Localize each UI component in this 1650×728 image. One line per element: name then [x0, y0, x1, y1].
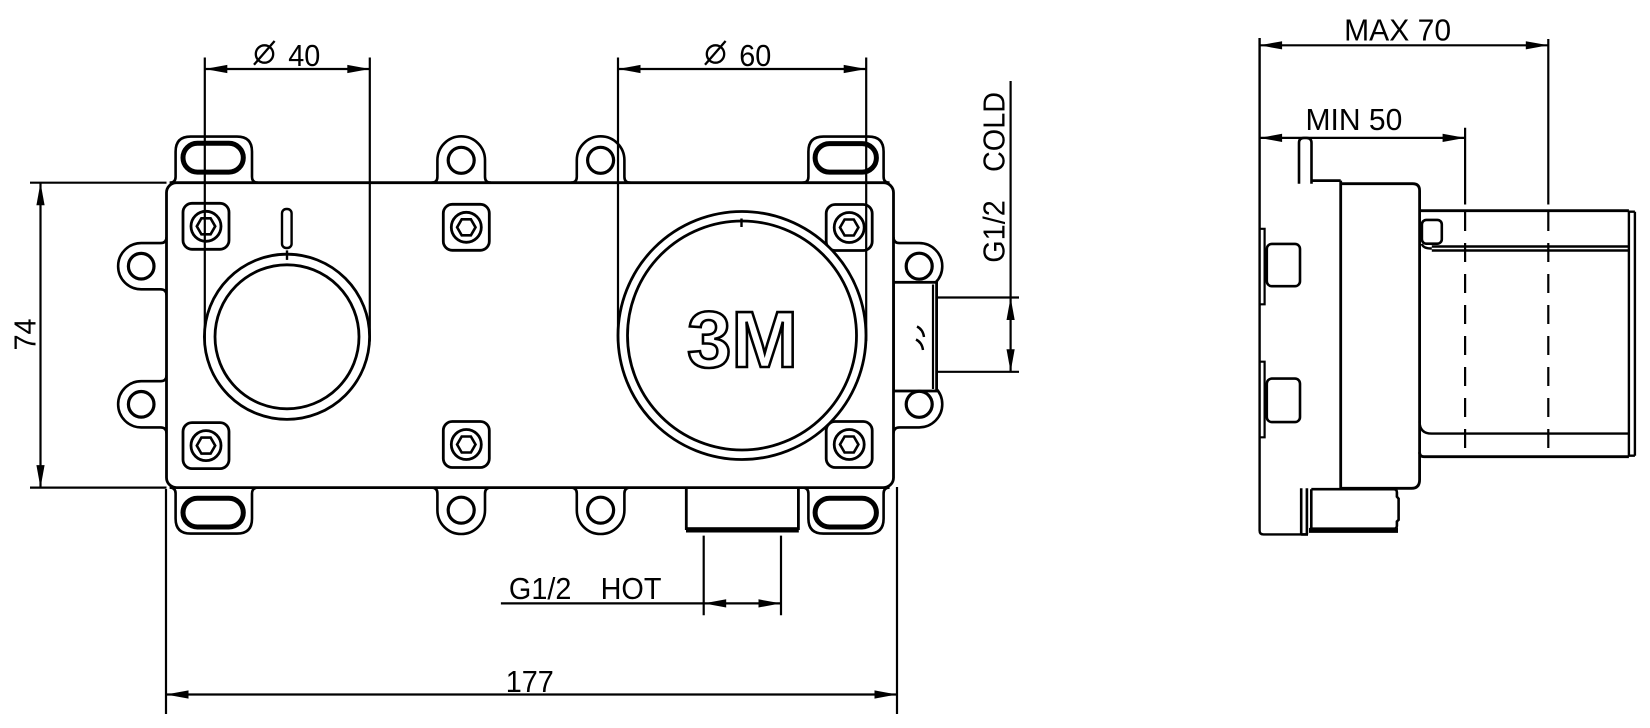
- svg-text:177: 177: [506, 665, 554, 699]
- svg-text:G1/2: G1/2: [978, 200, 1012, 262]
- svg-text:G1/2: G1/2: [509, 572, 571, 606]
- svg-text:MIN 50: MIN 50: [1305, 103, 1402, 138]
- svg-text:40: 40: [288, 39, 320, 73]
- svg-text:60: 60: [739, 39, 771, 73]
- svg-text:COLD: COLD: [978, 92, 1012, 172]
- svg-text:3M: 3M: [687, 295, 798, 384]
- svg-text:MAX 70: MAX 70: [1344, 13, 1451, 48]
- svg-text:74: 74: [8, 318, 42, 350]
- svg-text:HOT: HOT: [601, 572, 662, 606]
